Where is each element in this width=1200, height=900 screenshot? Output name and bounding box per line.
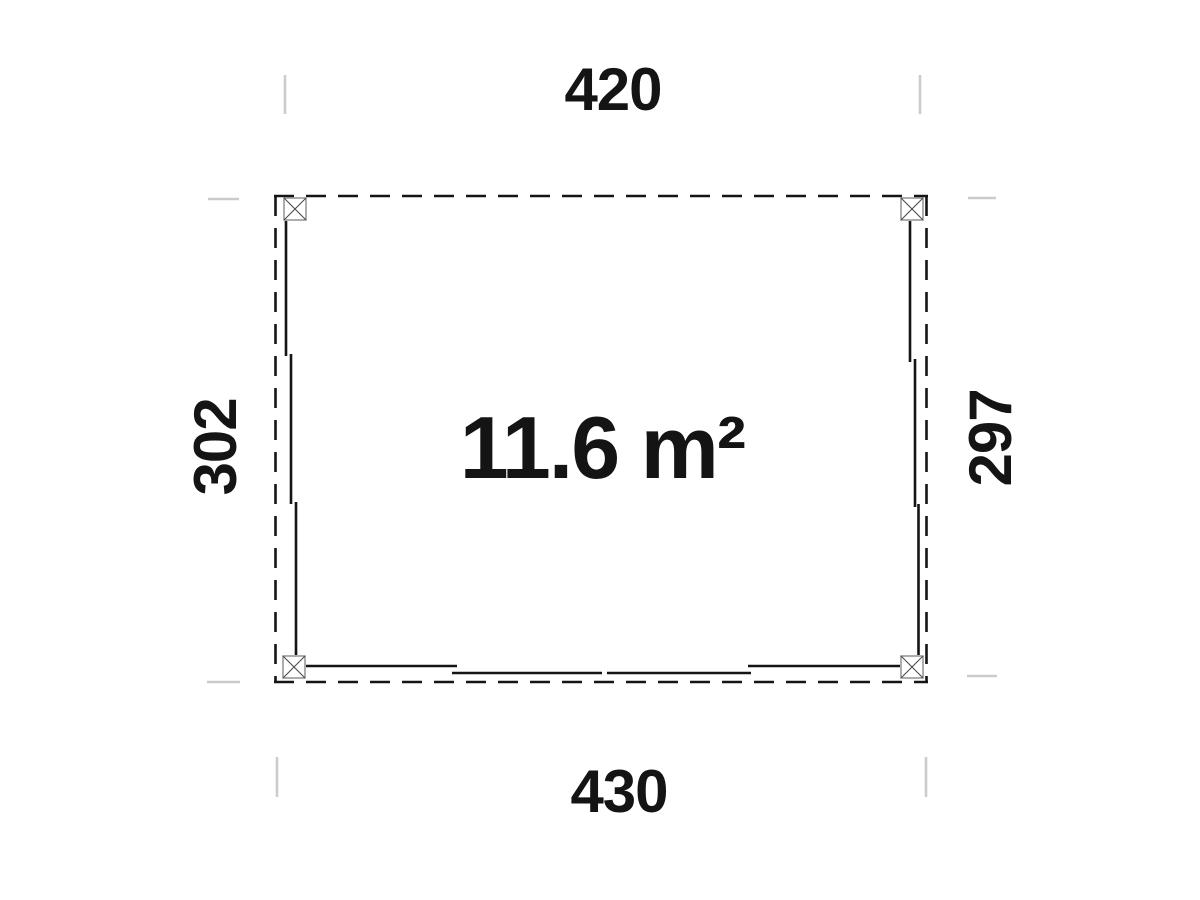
floor-plan-drawing: 420 430 302 297 11.6 m²	[0, 0, 1200, 900]
dimension-label-left: 302	[182, 398, 249, 495]
corner-post-top-left	[284, 198, 306, 220]
floor-plan-canvas: 420 430 302 297 11.6 m²	[0, 0, 1200, 900]
area-label: 11.6 m²	[460, 398, 745, 497]
corner-post-bottom-right	[901, 656, 923, 678]
dimension-label-top: 420	[564, 56, 661, 123]
corner-post-bottom-left	[283, 656, 305, 678]
dimension-label-bottom: 430	[570, 758, 667, 825]
corner-post-top-right	[901, 198, 923, 220]
dimension-label-right: 297	[957, 389, 1024, 486]
